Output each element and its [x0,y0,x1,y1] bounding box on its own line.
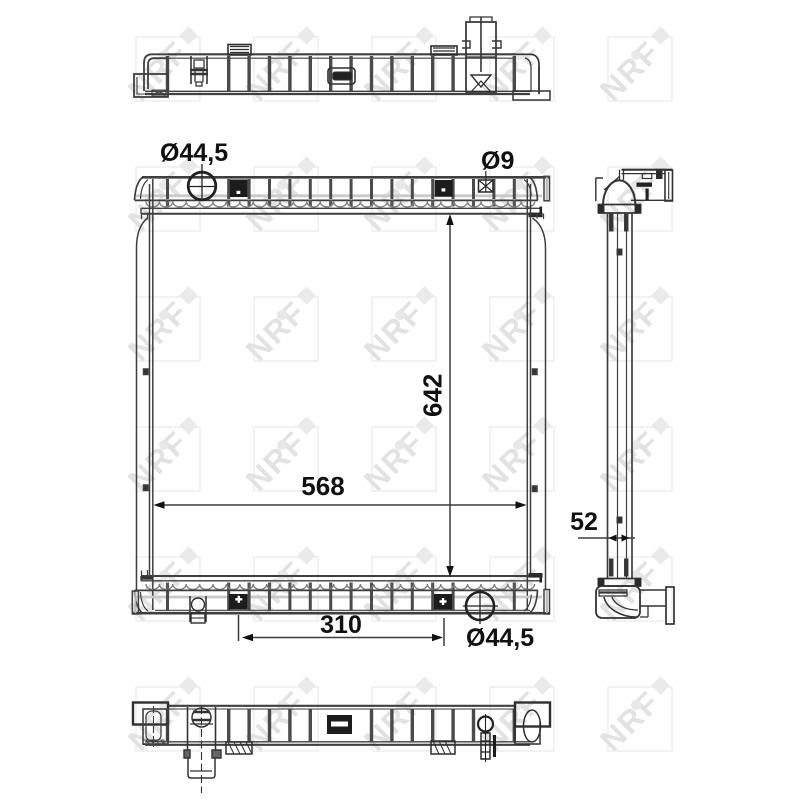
svg-text:Ø44,5: Ø44,5 [466,624,534,652]
svg-text:Ø9: Ø9 [481,147,514,175]
svg-text:642: 642 [418,374,448,417]
svg-text:568: 568 [301,471,344,501]
svg-text:310: 310 [320,611,362,639]
svg-text:Ø44,5: Ø44,5 [160,139,228,167]
svg-text:52: 52 [570,508,598,536]
